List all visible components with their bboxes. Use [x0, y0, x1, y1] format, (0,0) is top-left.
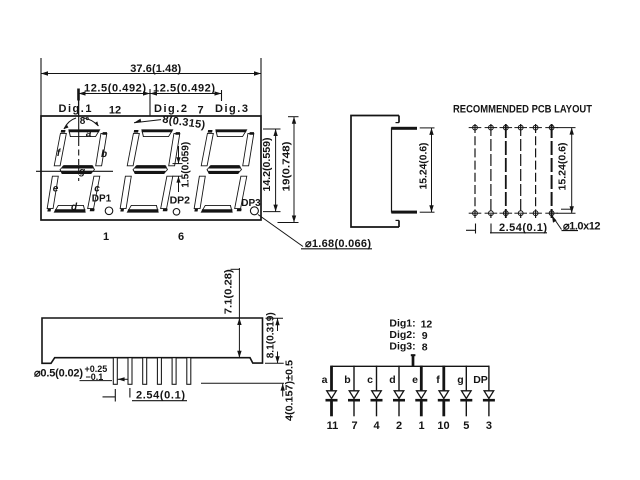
svg-text:19(0.748): 19(0.748): [282, 142, 293, 192]
svg-text:b: b: [344, 374, 350, 386]
svg-text:7.1(0.28): 7.1(0.28): [224, 269, 235, 314]
svg-text:8.1(0.319): 8.1(0.319): [266, 312, 277, 358]
svg-text:5: 5: [463, 420, 469, 432]
svg-text:DP2: DP2: [170, 195, 191, 207]
svg-text:Dig1:: Dig1:: [389, 318, 415, 330]
svg-text:DP1: DP1: [92, 193, 112, 204]
svg-text:2: 2: [396, 420, 402, 432]
svg-text:DP3: DP3: [241, 198, 261, 209]
svg-text:4(0.157)±0.5: 4(0.157)±0.5: [285, 360, 296, 421]
svg-text:Dig2:: Dig2:: [389, 329, 415, 341]
svg-text:15.24(0.6): 15.24(0.6): [419, 143, 430, 190]
svg-text:10: 10: [437, 420, 449, 432]
svg-text:14.2(0.559): 14.2(0.559): [262, 138, 273, 192]
svg-text:12: 12: [109, 105, 121, 117]
svg-text:12.5(0.492): 12.5(0.492): [153, 83, 215, 95]
svg-text:2.54(0.1): 2.54(0.1): [136, 390, 185, 402]
svg-text:15.24(0.6): 15.24(0.6): [557, 143, 568, 191]
svg-text:1: 1: [418, 420, 424, 432]
svg-text:DP: DP: [473, 374, 488, 386]
svg-text:3: 3: [486, 420, 492, 432]
svg-text:a: a: [322, 374, 328, 386]
svg-text:f: f: [436, 374, 440, 386]
svg-text:e: e: [53, 184, 59, 195]
svg-text:Dig3:: Dig3:: [389, 341, 415, 353]
svg-text:d: d: [71, 202, 78, 213]
svg-text:e: e: [412, 374, 418, 386]
svg-text:c: c: [367, 374, 373, 386]
svg-text:4: 4: [373, 420, 380, 432]
svg-text:⌀0.5(0.02): ⌀0.5(0.02): [34, 368, 83, 380]
svg-text:a: a: [86, 129, 92, 140]
svg-text:Dig.2: Dig.2: [154, 103, 187, 115]
svg-text:12.5(0.492): 12.5(0.492): [84, 83, 146, 95]
svg-text:7: 7: [351, 420, 357, 432]
svg-text:7: 7: [197, 105, 203, 117]
svg-text:11: 11: [327, 420, 339, 432]
svg-text:9: 9: [422, 330, 428, 342]
svg-text:g: g: [457, 374, 463, 386]
svg-text:2.54(0.1): 2.54(0.1): [499, 222, 547, 234]
svg-text:Dig.3: Dig.3: [215, 103, 248, 115]
svg-text:⌀1.68(0.066): ⌀1.68(0.066): [305, 238, 371, 250]
svg-text:g: g: [78, 167, 85, 178]
svg-text:⌀1.0x12: ⌀1.0x12: [563, 221, 601, 233]
svg-text:12: 12: [421, 318, 433, 330]
svg-text:Dig.1: Dig.1: [59, 103, 92, 115]
svg-text:6: 6: [178, 231, 184, 243]
svg-text:37.6(1.48): 37.6(1.48): [130, 63, 181, 75]
svg-text:8: 8: [422, 341, 428, 353]
svg-text:8°: 8°: [80, 116, 90, 127]
svg-text:1: 1: [103, 231, 109, 243]
svg-text:b: b: [101, 149, 107, 160]
svg-text:1.5(0.059): 1.5(0.059): [181, 142, 192, 188]
svg-text:d: d: [389, 374, 395, 386]
svg-text:RECOMMENDED PCB LAYOUT: RECOMMENDED PCB LAYOUT: [453, 104, 592, 116]
